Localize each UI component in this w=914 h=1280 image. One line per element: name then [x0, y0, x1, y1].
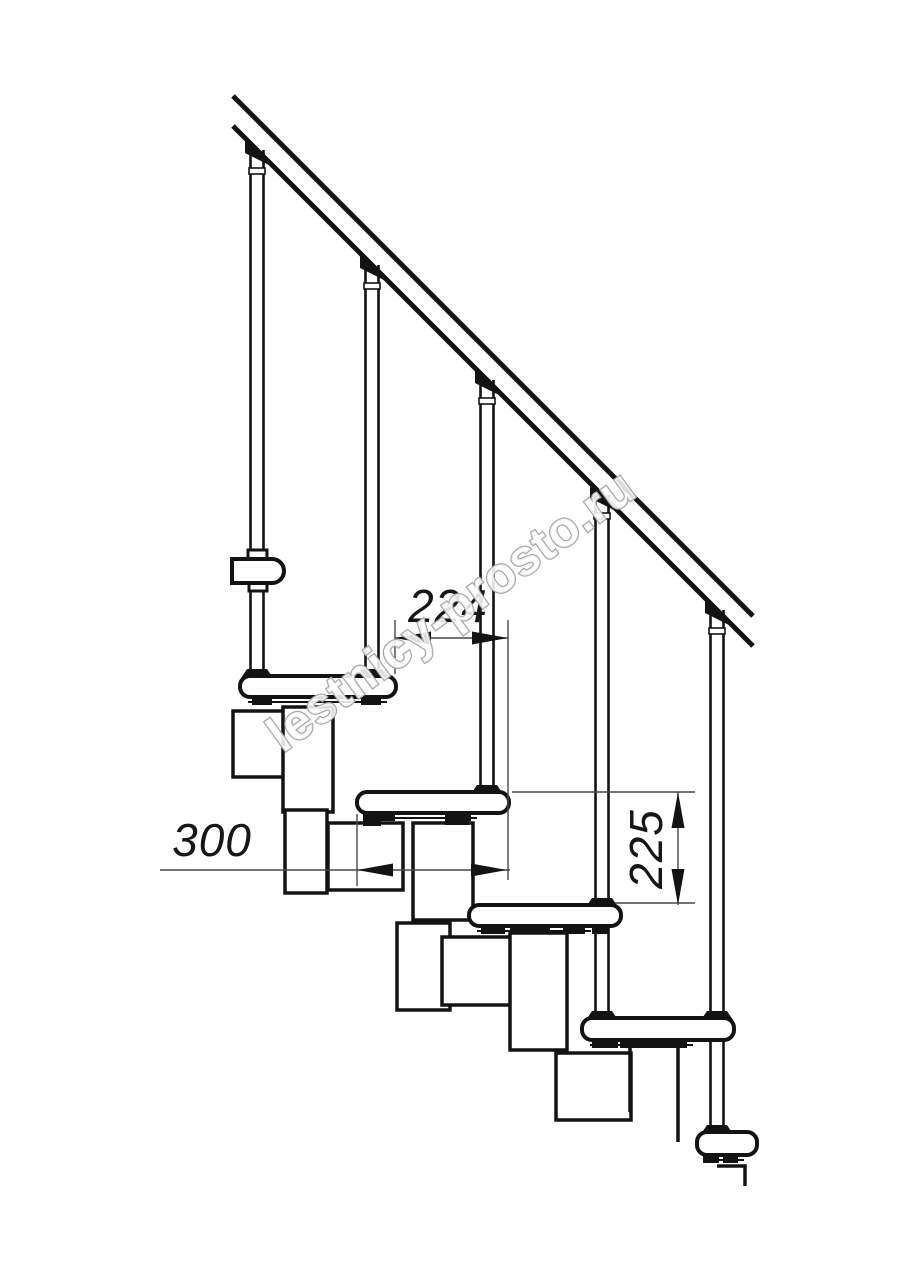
tread-clamp: [586, 898, 618, 907]
rail-clamp: [245, 137, 269, 165]
baluster-joint: [709, 628, 725, 634]
tread-clamp: [241, 669, 273, 678]
rail-clamp: [360, 252, 384, 280]
module-clamp: [363, 813, 381, 826]
dimension-arrow: [672, 869, 685, 905]
baluster-joint: [364, 283, 380, 289]
stair-tread: [357, 792, 509, 813]
tread-clamp: [701, 1011, 733, 1020]
tread-clamp: [701, 1125, 733, 1134]
support-module-box: [442, 937, 518, 1005]
floor-step-line: [717, 1166, 745, 1186]
tread-mounting-foot: [563, 926, 585, 934]
tread-mounting-foot: [252, 697, 272, 705]
tread-clamp: [471, 785, 503, 794]
dim-label-tread-depth: 300: [172, 814, 252, 866]
tread-mounting-foot: [510, 926, 550, 934]
blueprint-page: 224 300 225 lestnicy-prosto.ru: [0, 0, 914, 1280]
stair-tread: [469, 905, 621, 926]
module-clamp: [445, 813, 469, 825]
tread-clamp: [586, 1011, 618, 1020]
dimension-arrow: [472, 632, 508, 645]
rail-clamp: [705, 597, 729, 625]
tread-mounting-foot: [723, 1155, 738, 1163]
tread-mounting-foot: [703, 1155, 719, 1163]
tread-mounting-foot: [481, 926, 505, 934]
support-module-box: [556, 1053, 631, 1120]
support-module-box: [413, 823, 473, 920]
support-module-box: [285, 810, 327, 893]
tread-mounting-foot: [592, 1040, 618, 1048]
dimension-arrow: [471, 864, 507, 877]
baluster-joint: [479, 398, 495, 404]
stair-tread: [697, 1132, 757, 1155]
handrail-collar: [232, 559, 284, 583]
support-module-box: [510, 933, 567, 1050]
module-clamp: [592, 926, 609, 934]
staircase-elevation-drawing: 224 300 225 lestnicy-prosto.ru: [0, 0, 914, 1280]
dimension-arrow: [672, 792, 685, 828]
support-module-box: [328, 823, 403, 890]
stair-structure-layer: [232, 96, 757, 1186]
watermark-text: lestnicy-prosto.ru: [256, 458, 645, 762]
tread-mounting-foot: [620, 1040, 687, 1048]
baluster-joint: [249, 168, 265, 174]
dim-label-rise: 225: [620, 809, 672, 890]
rail-clamp: [475, 367, 499, 395]
stair-tread: [582, 1018, 734, 1040]
